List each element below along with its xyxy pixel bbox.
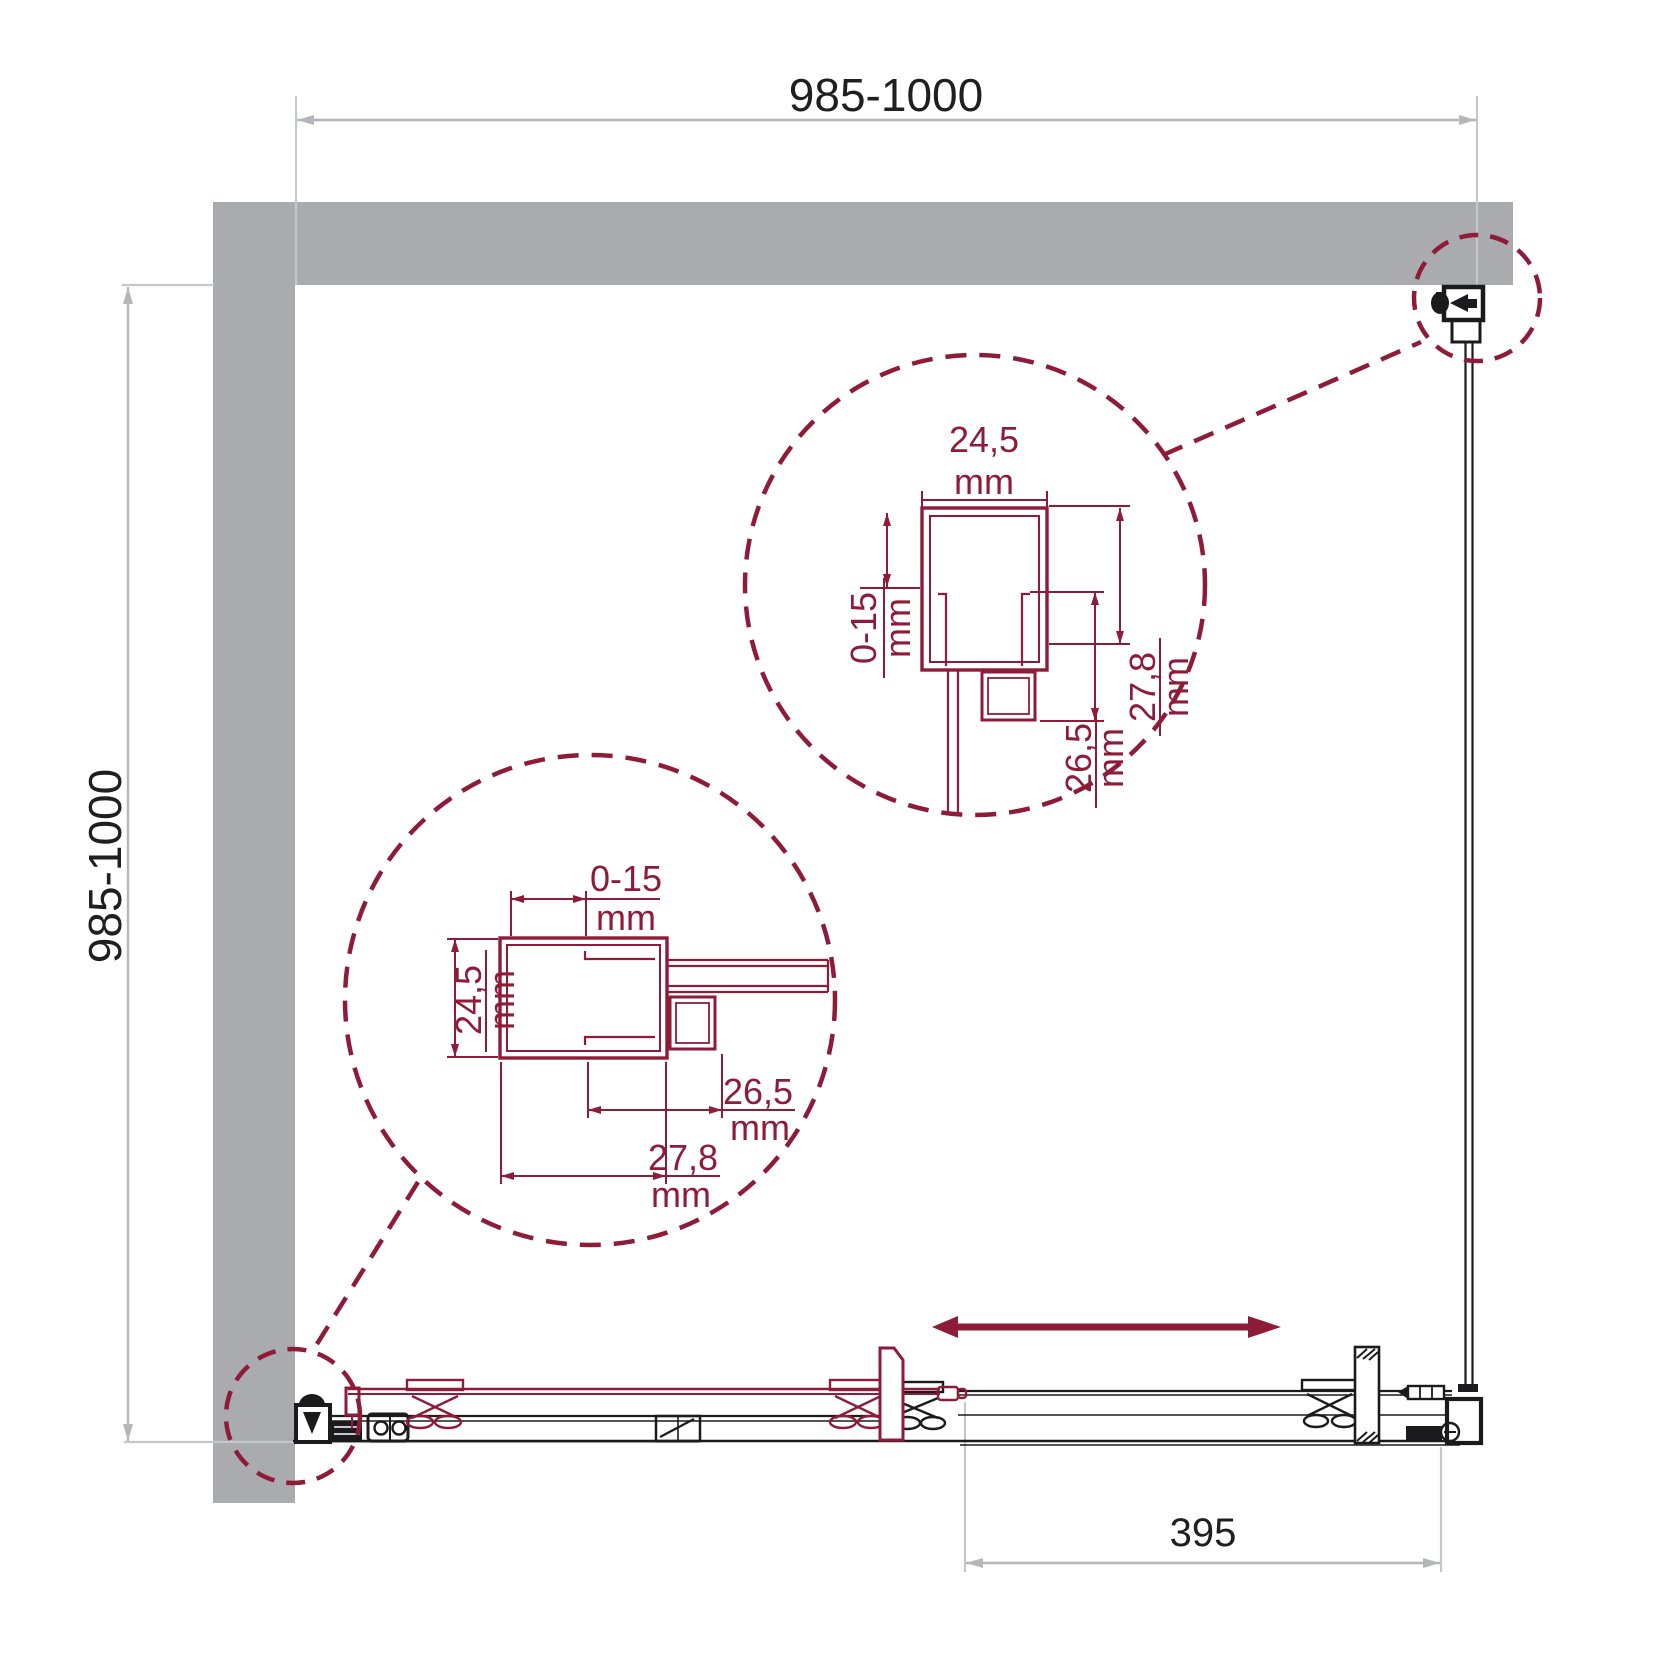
leader-line-lower [312, 1182, 418, 1352]
detail-lower-inner-depth-unit: mm [730, 1107, 790, 1148]
detail-upper-depth-unit: mm [1155, 657, 1196, 717]
wall-top [213, 202, 1513, 285]
dimension-top-label: 985-1000 [789, 69, 983, 121]
door-leading-profile [880, 1348, 903, 1440]
middle-bracket [656, 1416, 700, 1441]
fixed-glass-panel [1466, 323, 1473, 1389]
shower-enclosure-diagram: 985-1000 985-1000 395 [0, 0, 1654, 1654]
wall-left [213, 285, 295, 1503]
dimension-opening-label: 395 [1170, 1511, 1237, 1555]
dimension-opening: 395 [966, 1511, 1440, 1563]
dimension-top: 985-1000 [297, 69, 1476, 121]
detail-upper-adjustment-unit: mm [877, 598, 918, 658]
detail-upper-inner-depth-unit: mm [1090, 728, 1131, 788]
detail-lower-depth-unit: mm [651, 1174, 711, 1215]
diagram-svg: 985-1000 985-1000 395 [0, 0, 1654, 1654]
detail-lower-inner-depth-value: 26,5 [723, 1071, 793, 1112]
detail-lower-width-unit: mm [481, 970, 522, 1030]
right-corner-assembly [1398, 1384, 1481, 1443]
dimension-left-label: 985-1000 [79, 769, 131, 963]
slide-direction-arrow-icon [932, 1316, 1281, 1338]
extension-lines [122, 96, 1477, 1572]
detail-upper-width-value: 24,5 [949, 419, 1019, 460]
detail-upper-width-unit: mm [954, 461, 1014, 502]
detail-circles [226, 235, 1540, 1483]
dimension-left: 985-1000 [79, 287, 131, 1441]
detail-lower-depth-value: 27,8 [648, 1137, 718, 1178]
left-roller-bracket [368, 1414, 408, 1441]
leader-line-upper [1163, 342, 1421, 455]
detail-circle-lower [345, 755, 835, 1245]
top-right-wall-profile [1431, 287, 1483, 342]
detail-lower-adjustment-unit: mm [596, 897, 656, 938]
detail-lower-adjustment-value: 0-15 [590, 858, 662, 899]
detail-upper-labels: 24,5 mm 0-15 mm 27,8 mm 26,5 mm [843, 419, 1196, 793]
